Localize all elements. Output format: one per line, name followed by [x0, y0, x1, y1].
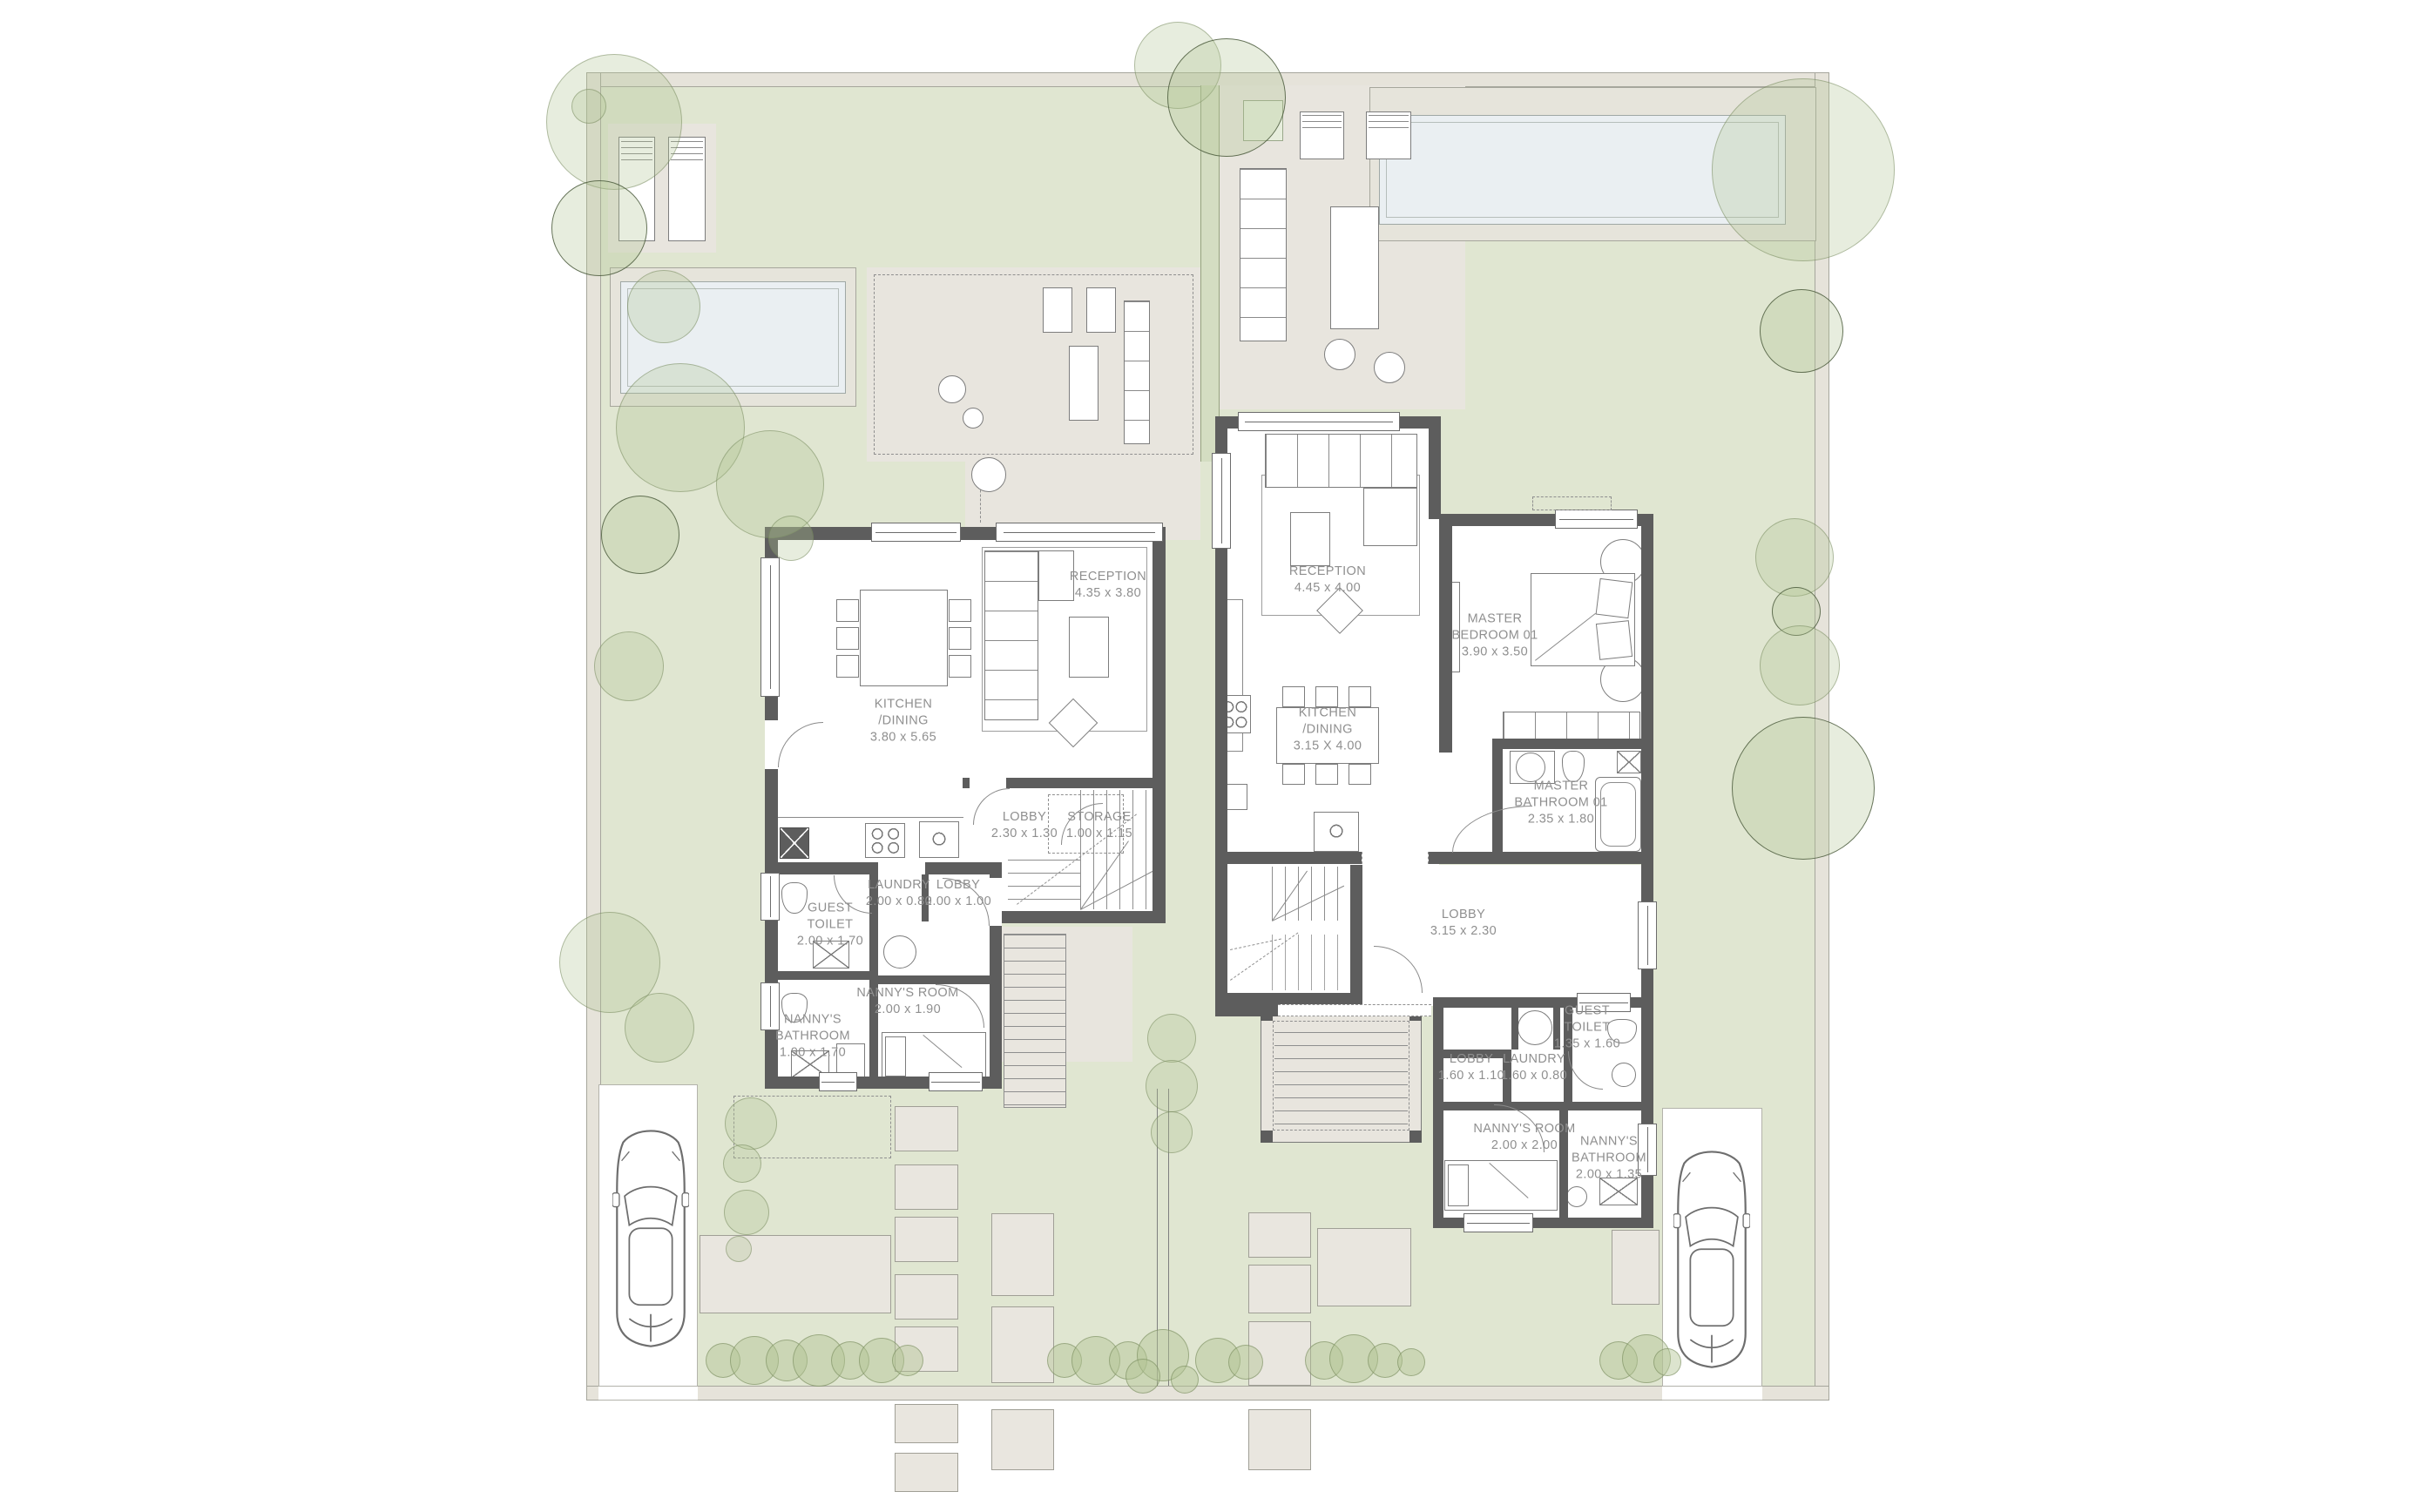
basin: [1612, 1063, 1636, 1087]
room-name: LAUNDRY: [868, 877, 930, 894]
wall-segment: [878, 975, 990, 984]
room-label-guest-toilet-b: GUEST TOILET 1.35 x 1.60: [1554, 1002, 1620, 1052]
patio-round-table: [971, 457, 1006, 492]
pergola-stair-treads: [1274, 1032, 1408, 1128]
driveway-curb-cut: [1662, 1386, 1762, 1401]
patio-sofa: [1124, 300, 1150, 444]
room-dims: 4.35 x 3.80: [1075, 585, 1141, 602]
room-dims: 2.00 x 1.35: [1576, 1167, 1642, 1184]
shower: [1617, 751, 1641, 773]
garden-pad: [1317, 1228, 1411, 1306]
basin: [1566, 1186, 1587, 1207]
room-label-lobby-b: LOBBY 3.15 x 2.30: [1430, 907, 1497, 940]
room-name: GUEST TOILET: [1565, 1002, 1611, 1036]
coffee-table-b: [1290, 512, 1330, 566]
dining-chair: [949, 599, 971, 622]
room-label-lobby2-a: LOBBY 2.00 x 1.00: [925, 877, 991, 910]
paver: [895, 1164, 958, 1210]
site-boundary-bottom: [586, 1386, 1829, 1401]
tree: [625, 993, 694, 1063]
tree: [768, 516, 814, 561]
room-name: LOBBY: [936, 877, 980, 894]
tree: [723, 1144, 761, 1183]
paver: [895, 1453, 958, 1492]
tree: [1712, 78, 1895, 261]
patio-pouf: [1324, 339, 1355, 370]
wall-segment: [1153, 778, 1166, 923]
wall-opening: [970, 778, 1006, 788]
room-name: LAUNDRY: [1503, 1051, 1565, 1068]
room-dims: 1.90 x 1.70: [780, 1045, 846, 1062]
wall-segment: [1433, 997, 1443, 1228]
tree: [1146, 1060, 1198, 1112]
room-label-lobby2-b: LOBBY 1.60 x 1.10: [1438, 1051, 1504, 1084]
patio-table: [1330, 206, 1379, 329]
room-name: RECEPTION: [1289, 564, 1366, 580]
room-label-guest-toilet-a: GUEST TOILET 2.00 x 1.70: [797, 900, 863, 949]
tree: [725, 1097, 777, 1150]
dining-chair: [949, 627, 971, 650]
bush: [892, 1345, 923, 1376]
car-right: [1673, 1139, 1750, 1374]
room-label-nanny-room-b: NANNY'S ROOM 2.00 x 2.00: [1473, 1121, 1575, 1154]
room-name: NANNY'S ROOM: [856, 985, 958, 1002]
tree: [1151, 1111, 1193, 1153]
dining-chair: [836, 655, 859, 678]
room-name: RECEPTION: [1070, 569, 1146, 585]
tree: [726, 1236, 752, 1262]
floor-plan-canvas: RECEPTION 4.35 x 3.80 KITCHEN /DINING 3.…: [0, 0, 2420, 1512]
room-name: KITCHEN /DINING: [1299, 705, 1356, 738]
wall-segment: [1511, 1008, 1518, 1050]
room-label-lobby-a: LOBBY 2.30 x 1.30: [991, 809, 1058, 842]
tree: [1755, 518, 1834, 597]
room-dims: 2.00 x 0.80: [866, 894, 932, 910]
paver: [1248, 1212, 1311, 1258]
dining-chair: [1349, 764, 1371, 785]
wall-segment: [1215, 1004, 1278, 1016]
patio-lounge-chair-lines: [1302, 115, 1342, 131]
tree: [627, 270, 700, 343]
coffee-table-a: [1069, 617, 1109, 678]
window: [1463, 1213, 1533, 1232]
dining-chair: [836, 627, 859, 650]
room-label-reception-b: RECEPTION 4.45 x 4.00: [1289, 564, 1366, 597]
paver: [895, 1404, 958, 1443]
paver: [1248, 1409, 1311, 1470]
bed-pillow: [1596, 578, 1633, 618]
room-label-storage-a: STORAGE 1.00 x 1.15: [1066, 809, 1132, 842]
door-opening: [765, 720, 778, 769]
washing-machine-a: [883, 935, 916, 969]
room-dims: 3.80 x 5.65: [870, 730, 936, 746]
tree: [601, 496, 679, 574]
bush: [1171, 1366, 1199, 1394]
driveway-curb-cut: [598, 1386, 698, 1401]
fridge-a: [780, 827, 809, 859]
room-dims: 1.60 x 1.10: [1438, 1068, 1504, 1084]
car-top-view: [1673, 1139, 1750, 1374]
stove-a: [865, 823, 905, 858]
pergola-post: [1261, 1131, 1273, 1143]
room-name: NANNY'S BATHROOM: [1572, 1133, 1646, 1166]
tree: [571, 89, 606, 124]
wall-segment: [1443, 1102, 1641, 1110]
room-name: NANNY'S ROOM: [1473, 1121, 1575, 1137]
window: [819, 1072, 857, 1091]
pergola-post: [1409, 1131, 1422, 1143]
bush: [1126, 1359, 1160, 1394]
room-dims: 2.00 x 1.00: [925, 894, 991, 910]
wall-segment: [1641, 514, 1653, 1228]
bush: [1653, 1348, 1681, 1376]
room-label-nanny-room-a: NANNY'S ROOM 2.00 x 1.90: [856, 985, 958, 1018]
window: [1212, 453, 1231, 549]
tree: [551, 180, 647, 276]
garden-pad: [1612, 1230, 1660, 1305]
room-name: KITCHEN /DINING: [875, 696, 932, 729]
room-label-kitchen-b: KITCHEN /DINING 3.15 X 4.00: [1294, 705, 1362, 754]
room-name: MASTER BATHROOM 01: [1514, 778, 1607, 811]
paver: [991, 1213, 1054, 1296]
window: [1555, 510, 1638, 529]
tree: [716, 430, 824, 538]
paver: [991, 1409, 1054, 1470]
kitchen-sink-a: [919, 821, 959, 858]
room-label-laundry-b: LAUNDRY 1.60 x 0.80: [1501, 1051, 1567, 1084]
patio-armchair: [1043, 287, 1072, 333]
room-name: LOBBY: [1003, 809, 1046, 826]
window: [929, 1072, 983, 1091]
car-top-view: [612, 1118, 689, 1353]
window: [760, 557, 780, 697]
room-dims: 3.15 x 2.30: [1430, 923, 1497, 940]
cased-opening: [1362, 852, 1429, 864]
patio-sofa: [1240, 168, 1287, 341]
exterior-stair: [1004, 934, 1066, 1108]
room-name: LOBBY: [1450, 1051, 1493, 1068]
room-dims: 3.15 X 4.00: [1294, 739, 1362, 755]
paver: [895, 1274, 958, 1320]
patio-pouf: [963, 408, 984, 429]
sofa-b: [1265, 434, 1417, 488]
wall-segment: [1429, 416, 1441, 519]
sofa-a-chaise: [1038, 550, 1074, 601]
dining-chair: [1315, 764, 1338, 785]
wall-segment: [1350, 865, 1362, 1004]
room-dims: 2.30 x 1.30: [991, 826, 1058, 842]
kitchen-counter-edge: [778, 817, 963, 818]
wall-segment: [765, 971, 878, 980]
window: [996, 523, 1163, 542]
window: [760, 873, 780, 921]
room-dims: 1.35 x 1.60: [1554, 1036, 1620, 1053]
room-label-master-bathroom: MASTER BATHROOM 01 2.35 x 1.80: [1514, 778, 1607, 827]
dining-table-a: [860, 590, 948, 686]
paver: [895, 1106, 958, 1151]
tree: [1760, 289, 1843, 373]
room-name: NANNY'S BATHROOM: [775, 1011, 850, 1044]
dining-chair: [1282, 764, 1305, 785]
wall-segment: [1492, 739, 1641, 749]
car-left: [612, 1118, 689, 1353]
room-dims: 1.60 x 0.80: [1501, 1068, 1567, 1084]
room-label-reception-a: RECEPTION 4.35 x 3.80: [1070, 569, 1146, 602]
washing-machine-b: [1518, 1010, 1552, 1045]
room-label-kitchen-a: KITCHEN /DINING 3.80 x 5.65: [870, 696, 936, 746]
room-dims: 2.00 x 1.70: [797, 934, 863, 950]
kitchen-sink-b: [1314, 812, 1359, 852]
room-dims: 4.45 x 4.00: [1294, 580, 1361, 597]
room-label-nanny-bath-a: NANNY'S BATHROOM 1.90 x 1.70: [775, 1011, 850, 1061]
paver: [895, 1217, 958, 1262]
tree: [594, 631, 664, 701]
tree: [1167, 38, 1286, 157]
bush: [1228, 1345, 1263, 1380]
wall-segment: [1153, 527, 1166, 788]
room-dims: 2.00 x 2.00: [1491, 1137, 1558, 1154]
room-dims: 2.00 x 1.90: [875, 1002, 941, 1018]
tree: [546, 54, 682, 190]
patio-pouf: [1374, 352, 1405, 383]
wall-opening: [878, 862, 925, 874]
tree: [724, 1190, 769, 1235]
wall-segment: [1215, 852, 1362, 864]
entry-threshold: [1278, 1004, 1431, 1016]
room-dims: 1.00 x 1.15: [1066, 826, 1132, 842]
window: [871, 523, 961, 542]
window: [1238, 412, 1400, 431]
patio-table: [1069, 346, 1098, 421]
room-dims: 3.90 x 3.50: [1462, 645, 1528, 661]
room-name: LOBBY: [1442, 907, 1485, 923]
tree: [1147, 1014, 1196, 1063]
window: [1638, 901, 1657, 969]
wall-segment: [1439, 526, 1452, 753]
sofa-b-chaise: [1363, 488, 1417, 546]
room-dims: 2.35 x 1.80: [1528, 812, 1594, 828]
bush: [1397, 1348, 1425, 1376]
room-name: STORAGE: [1067, 809, 1131, 826]
room-label-laundry-a: LAUNDRY 2.00 x 0.80: [866, 877, 932, 910]
bed-pillow: [1596, 620, 1632, 660]
tree: [1732, 717, 1875, 860]
tree: [1760, 625, 1840, 705]
patio-lounge-chair-lines: [1369, 115, 1409, 131]
bed-pillow: [1448, 1164, 1469, 1206]
paver: [1248, 1265, 1311, 1313]
room-name: GUEST TOILET: [808, 900, 854, 933]
paver: [991, 1306, 1054, 1383]
room-label-master-bedroom: MASTER BEDROOM 01 3.90 x 3.50: [1451, 611, 1538, 660]
patio-pouf: [938, 375, 966, 403]
stair-b-treads: [1272, 867, 1350, 921]
dining-chair: [836, 599, 859, 622]
canopy-dashed-outline: [1532, 496, 1612, 510]
room-name: MASTER BEDROOM 01: [1451, 611, 1538, 644]
wall-segment: [1429, 852, 1653, 864]
wall-segment: [1002, 911, 1166, 923]
patio-armchair: [1086, 287, 1116, 333]
sofa-a: [984, 550, 1038, 720]
room-label-nanny-bath-b: NANNY'S BATHROOM 2.00 x 1.35: [1572, 1133, 1646, 1183]
bed-pillow: [885, 1036, 906, 1077]
dining-chair: [949, 655, 971, 678]
door-opening: [990, 878, 1002, 926]
wall-segment: [1215, 993, 1362, 1005]
